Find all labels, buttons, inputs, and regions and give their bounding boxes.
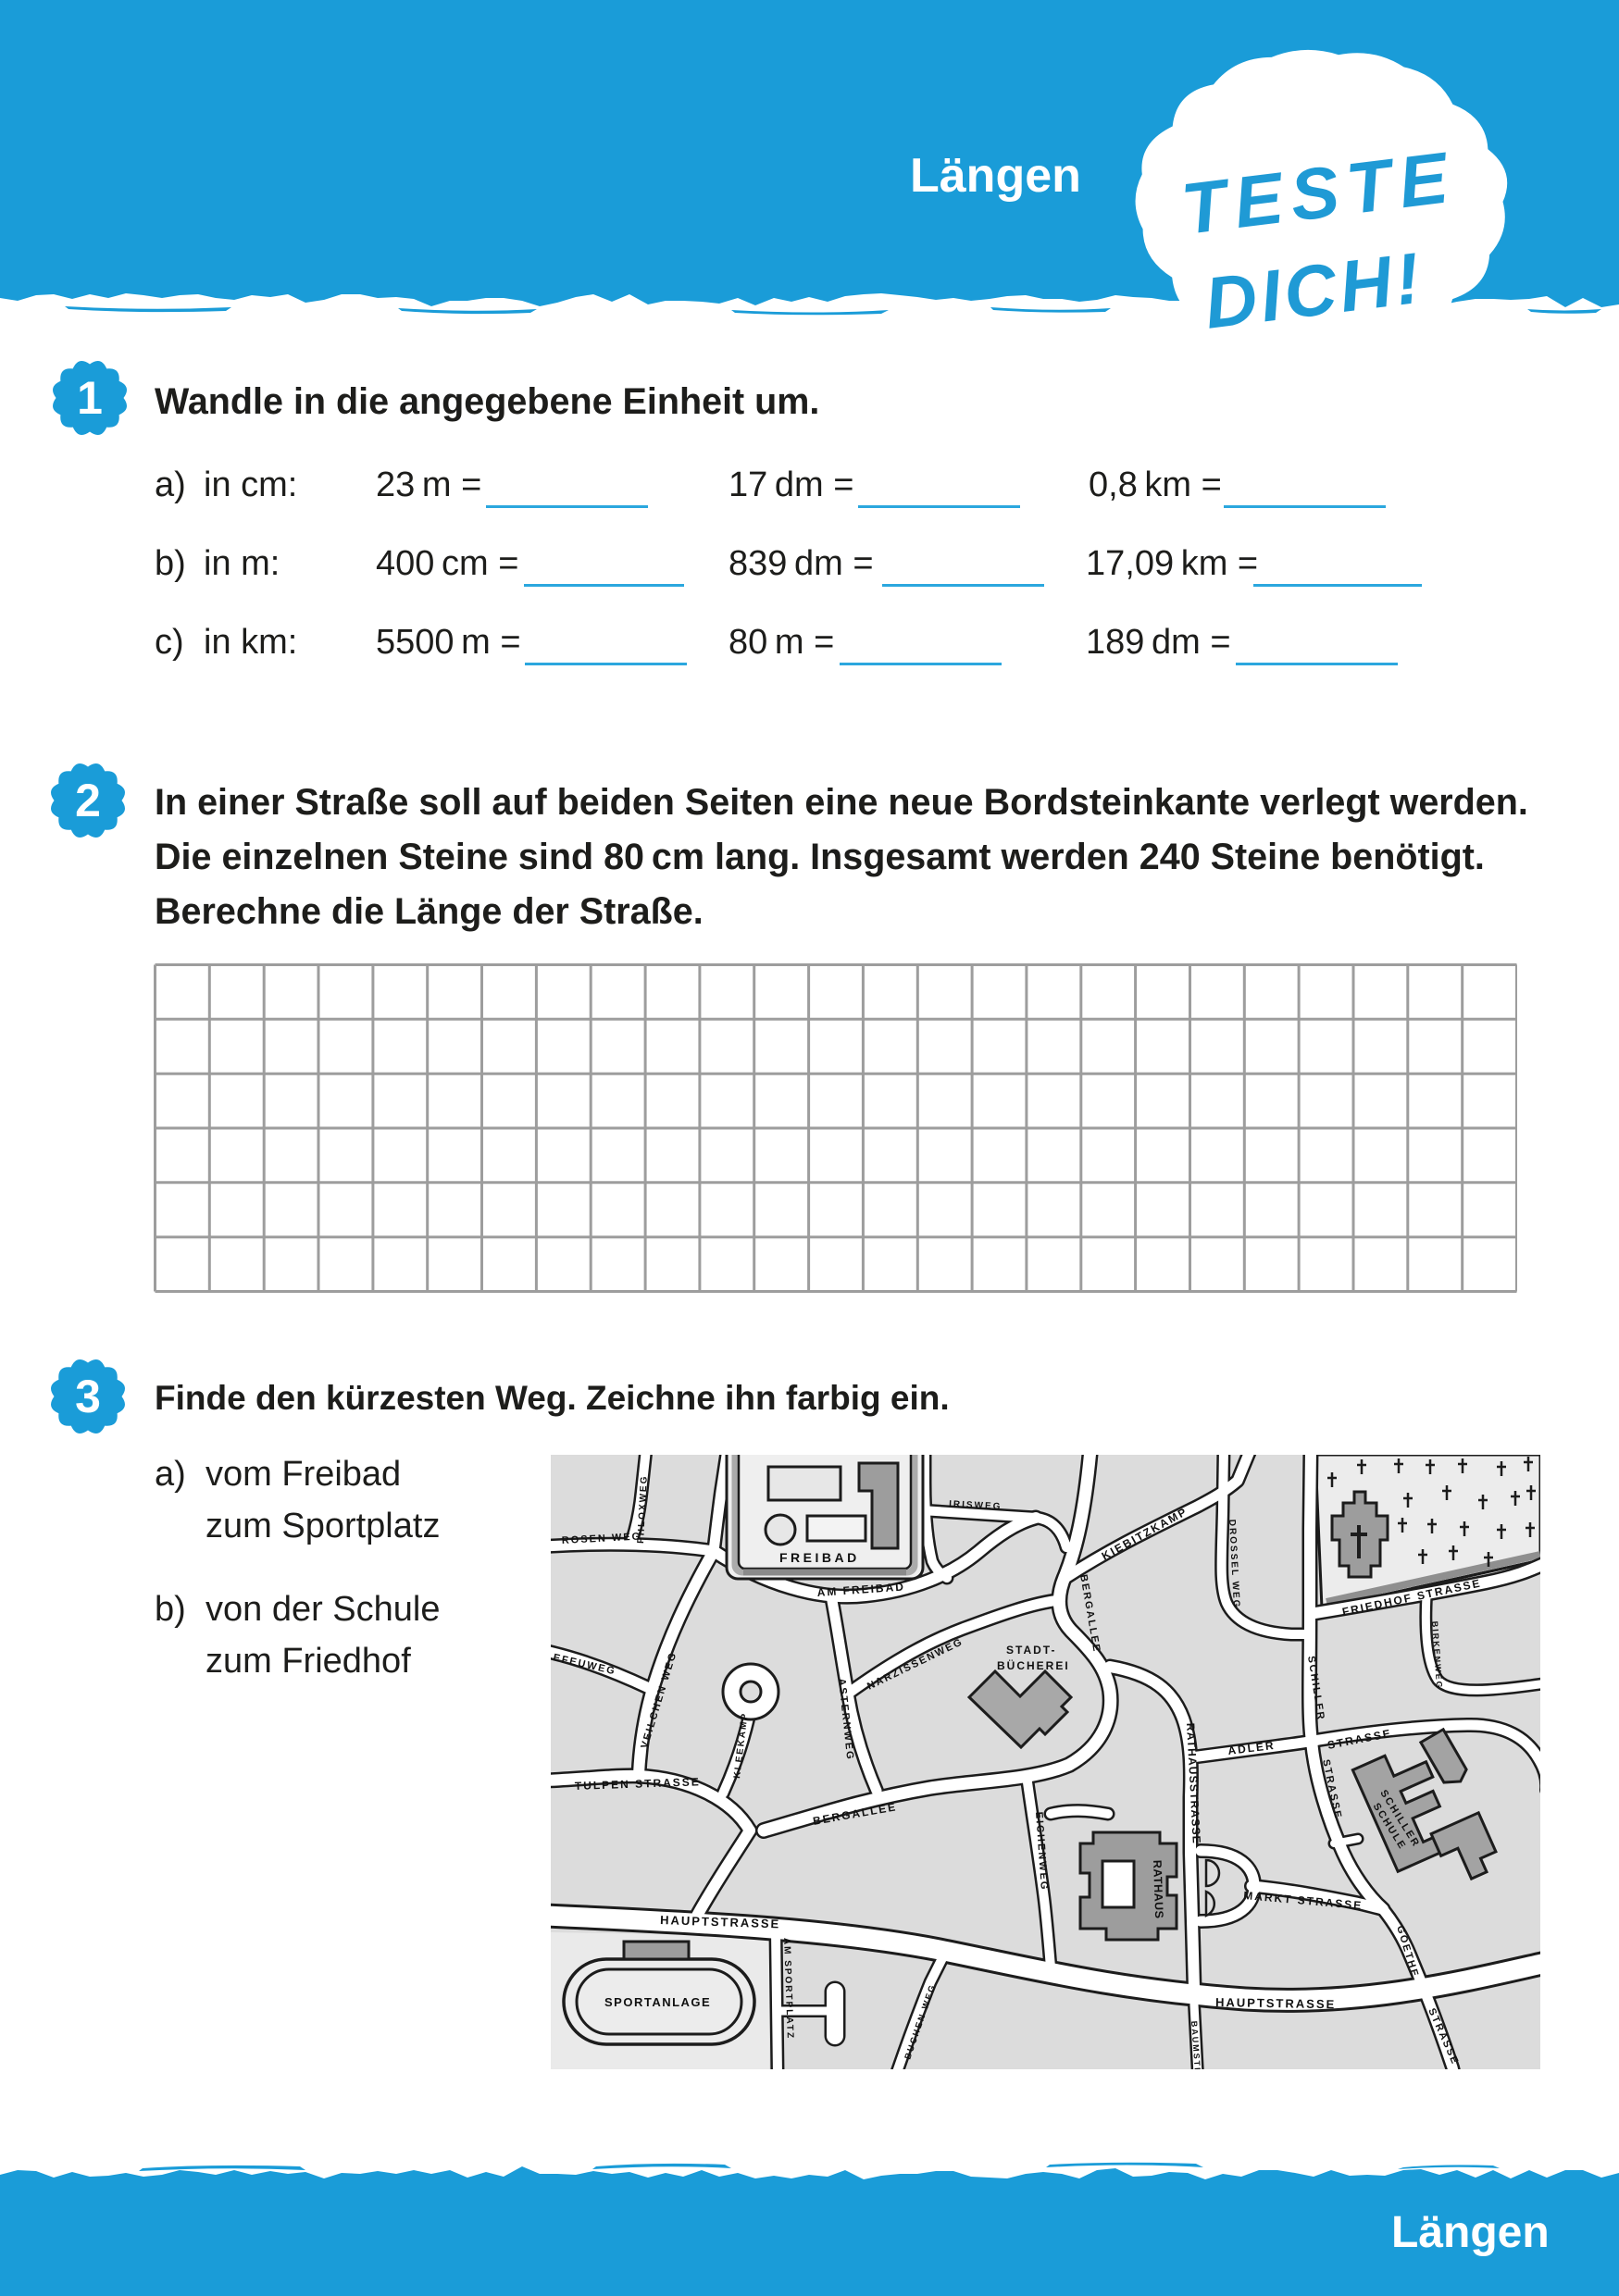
svg-text:SPORTANLAGE: SPORTANLAGE xyxy=(604,1995,711,2009)
svg-text:3: 3 xyxy=(75,1371,101,1422)
svg-text:Längen: Längen xyxy=(1391,2208,1550,2257)
svg-text:2: 2 xyxy=(75,775,101,826)
svg-text:Längen: Längen xyxy=(910,149,1081,203)
svg-text:HAUPTSTRASSE: HAUPTSTRASSE xyxy=(1215,1995,1336,2011)
svg-text:1: 1 xyxy=(77,372,103,424)
svg-text:RATHAUS: RATHAUS xyxy=(1151,1860,1165,1919)
svg-text:FREIBAD: FREIBAD xyxy=(779,1550,860,1565)
svg-text:STADT-: STADT- xyxy=(1006,1644,1056,1657)
svg-text:BÜCHEREI: BÜCHEREI xyxy=(997,1658,1070,1672)
